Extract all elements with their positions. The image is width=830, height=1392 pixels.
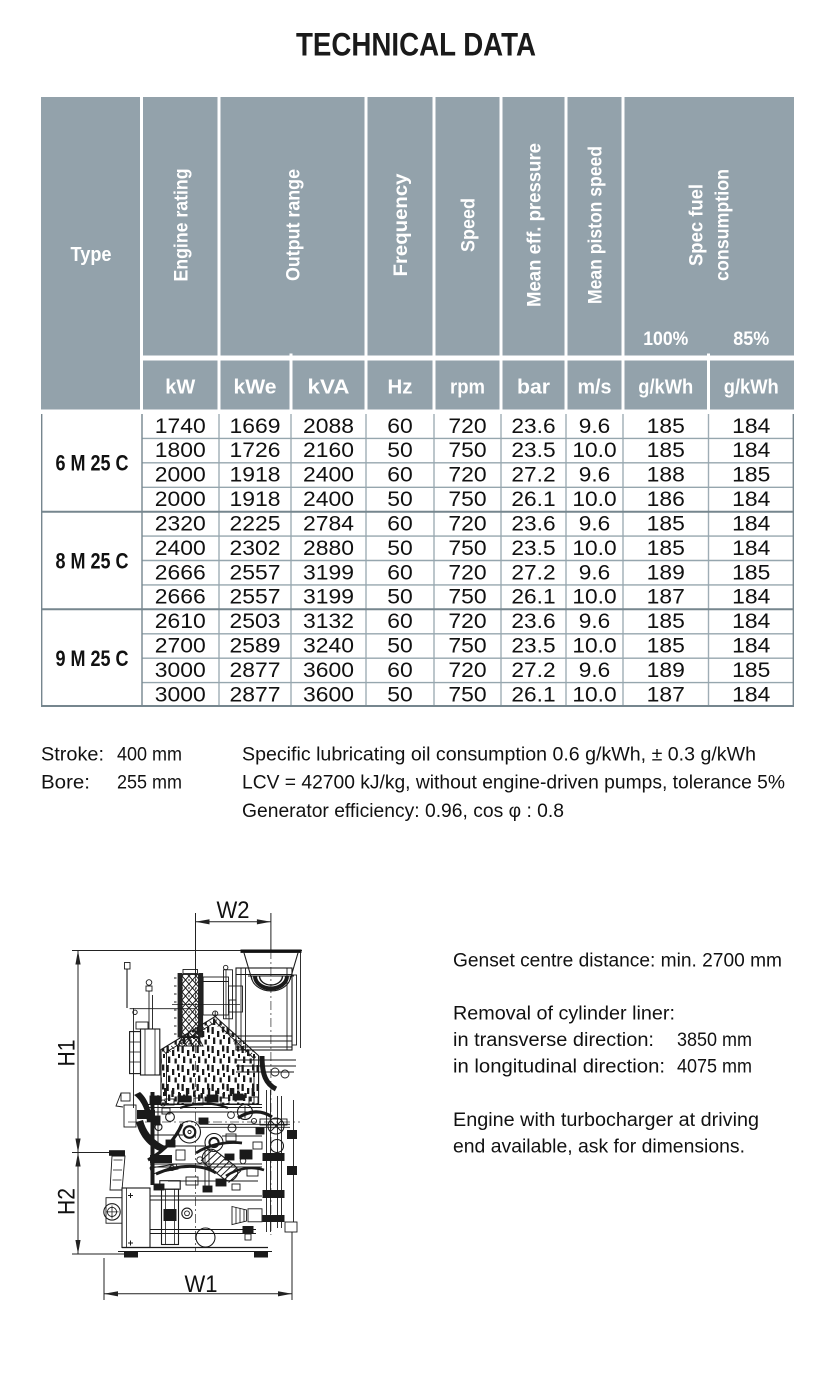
svg-text:3132: 3132 <box>303 609 354 633</box>
svg-text:9.6: 9.6 <box>579 463 611 487</box>
svg-text:26.1: 26.1 <box>511 585 555 609</box>
svg-text:255 mm: 255 mm <box>117 773 182 794</box>
svg-text:2400: 2400 <box>155 536 206 560</box>
svg-text:2160: 2160 <box>303 438 354 462</box>
svg-text:720: 720 <box>448 609 486 633</box>
svg-text:50: 50 <box>387 536 413 560</box>
svg-text:23.5: 23.5 <box>511 438 555 462</box>
svg-text:400 mm: 400 mm <box>117 745 182 766</box>
svg-text:3850 mm: 3850 mm <box>677 1030 752 1051</box>
svg-text:720: 720 <box>448 414 486 438</box>
svg-text:50: 50 <box>387 634 413 658</box>
svg-text:3000: 3000 <box>155 658 206 682</box>
svg-text:23.6: 23.6 <box>511 414 555 438</box>
svg-text:1918: 1918 <box>230 487 281 511</box>
svg-text:consumption: consumption <box>712 169 734 281</box>
svg-text:27.2: 27.2 <box>511 463 555 487</box>
svg-text:1669: 1669 <box>230 414 281 438</box>
svg-text:185: 185 <box>647 438 685 462</box>
svg-text:185: 185 <box>647 609 685 633</box>
svg-text:g/kWh: g/kWh <box>724 377 779 399</box>
svg-text:2877: 2877 <box>230 682 281 706</box>
svg-text:85%: 85% <box>733 329 769 350</box>
svg-text:Mean piston speed: Mean piston speed <box>585 146 607 304</box>
svg-text:184: 184 <box>732 414 770 438</box>
svg-text:Mean eff. pressure: Mean eff. pressure <box>524 143 546 307</box>
svg-text:184: 184 <box>732 487 770 511</box>
svg-text:185: 185 <box>647 414 685 438</box>
svg-text:2880: 2880 <box>303 536 354 560</box>
svg-text:23.6: 23.6 <box>511 609 555 633</box>
svg-text:184: 184 <box>732 438 770 462</box>
svg-text:LCV = 42700 kJ/kg, without eng: LCV = 42700 kJ/kg, without engine-driven… <box>242 773 785 794</box>
svg-text:185: 185 <box>647 536 685 560</box>
svg-text:2589: 2589 <box>230 634 281 658</box>
svg-text:Specific lubricating oil consu: Specific lubricating oil consumption 0.6… <box>242 745 756 766</box>
svg-text:Bore:: Bore: <box>41 773 90 794</box>
svg-text:23.5: 23.5 <box>511 634 555 658</box>
svg-text:2610: 2610 <box>155 609 206 633</box>
svg-text:750: 750 <box>448 634 486 658</box>
svg-text:10.0: 10.0 <box>572 438 616 462</box>
svg-text:2877: 2877 <box>230 658 281 682</box>
svg-text:1918: 1918 <box>230 463 281 487</box>
svg-text:1726: 1726 <box>230 438 281 462</box>
svg-text:60: 60 <box>387 414 413 438</box>
svg-text:2666: 2666 <box>155 560 206 584</box>
svg-text:750: 750 <box>448 487 486 511</box>
svg-text:185: 185 <box>732 463 770 487</box>
svg-text:720: 720 <box>448 560 486 584</box>
svg-text:2400: 2400 <box>303 463 354 487</box>
svg-text:184: 184 <box>732 609 770 633</box>
svg-text:27.2: 27.2 <box>511 658 555 682</box>
svg-text:9.6: 9.6 <box>579 560 611 584</box>
svg-text:189: 189 <box>647 560 685 584</box>
svg-text:rpm: rpm <box>450 377 485 399</box>
svg-text:Genset centre distance: min. 2: Genset centre distance: min. 2700 mm <box>453 951 782 972</box>
svg-text:720: 720 <box>448 658 486 682</box>
svg-text:720: 720 <box>448 463 486 487</box>
svg-text:2320: 2320 <box>155 512 206 536</box>
svg-text:Removal of cylinder liner:: Removal of cylinder liner: <box>453 1004 675 1025</box>
svg-text:184: 184 <box>732 536 770 560</box>
svg-text:end available, ask for dimensi: end available, ask for dimensions. <box>453 1137 745 1158</box>
svg-text:W2: W2 <box>217 897 250 924</box>
svg-text:26.1: 26.1 <box>511 487 555 511</box>
svg-text:750: 750 <box>448 438 486 462</box>
svg-text:184: 184 <box>732 585 770 609</box>
svg-text:1800: 1800 <box>155 438 206 462</box>
svg-text:10.0: 10.0 <box>572 487 616 511</box>
svg-text:Frequency: Frequency <box>390 173 412 276</box>
svg-text:10.0: 10.0 <box>572 682 616 706</box>
svg-text:750: 750 <box>448 536 486 560</box>
svg-text:50: 50 <box>387 487 413 511</box>
svg-text:185: 185 <box>647 634 685 658</box>
svg-text:23.6: 23.6 <box>511 512 555 536</box>
svg-text:60: 60 <box>387 560 413 584</box>
svg-text:189: 189 <box>647 658 685 682</box>
svg-text:9.6: 9.6 <box>579 658 611 682</box>
svg-text:in longitudinal direction:: in longitudinal direction: <box>453 1057 665 1078</box>
svg-text:2225: 2225 <box>230 512 281 536</box>
svg-text:50: 50 <box>387 438 413 462</box>
svg-text:26.1: 26.1 <box>511 682 555 706</box>
svg-text:188: 188 <box>647 463 685 487</box>
svg-text:750: 750 <box>448 585 486 609</box>
svg-text:in transverse direction:: in transverse direction: <box>453 1030 654 1051</box>
svg-text:4075 mm: 4075 mm <box>677 1057 752 1078</box>
svg-text:6 M 25 C: 6 M 25 C <box>56 451 129 476</box>
svg-text:184: 184 <box>732 512 770 536</box>
svg-text:1740: 1740 <box>155 414 206 438</box>
svg-text:186: 186 <box>647 487 685 511</box>
svg-text:100%: 100% <box>643 329 688 350</box>
svg-text:2784: 2784 <box>303 512 354 536</box>
svg-text:184: 184 <box>732 634 770 658</box>
svg-text:3600: 3600 <box>303 682 354 706</box>
svg-text:H1: H1 <box>54 1040 81 1067</box>
svg-text:50: 50 <box>387 682 413 706</box>
svg-text:750: 750 <box>448 682 486 706</box>
svg-text:Type: Type <box>71 244 112 266</box>
svg-text:2503: 2503 <box>230 609 281 633</box>
svg-text:10.0: 10.0 <box>572 536 616 560</box>
svg-text:185: 185 <box>732 658 770 682</box>
svg-text:9.6: 9.6 <box>579 609 611 633</box>
svg-text:2000: 2000 <box>155 463 206 487</box>
svg-text:8 M 25 C: 8 M 25 C <box>56 548 129 573</box>
svg-text:Hz: Hz <box>388 377 413 399</box>
svg-text:10.0: 10.0 <box>572 585 616 609</box>
svg-text:Output range: Output range <box>283 169 305 281</box>
svg-text:3240: 3240 <box>303 634 354 658</box>
svg-text:2557: 2557 <box>230 585 281 609</box>
svg-text:27.2: 27.2 <box>511 560 555 584</box>
svg-text:2557: 2557 <box>230 560 281 584</box>
svg-text:Speed: Speed <box>458 198 480 252</box>
svg-text:kVA: kVA <box>308 377 350 399</box>
svg-text:60: 60 <box>387 658 413 682</box>
svg-text:Generator efficiency: 0.96, co: Generator efficiency: 0.96, cos φ : 0.8 <box>242 801 564 822</box>
svg-text:2400: 2400 <box>303 487 354 511</box>
svg-text:9 M 25 C: 9 M 25 C <box>56 646 129 671</box>
svg-text:187: 187 <box>647 585 685 609</box>
svg-text:9.6: 9.6 <box>579 414 611 438</box>
svg-text:bar: bar <box>517 377 550 399</box>
svg-text:50: 50 <box>387 585 413 609</box>
svg-text:60: 60 <box>387 512 413 536</box>
svg-text:60: 60 <box>387 609 413 633</box>
svg-text:H2: H2 <box>54 1188 81 1215</box>
svg-text:185: 185 <box>647 512 685 536</box>
svg-text:3600: 3600 <box>303 658 354 682</box>
svg-text:187: 187 <box>647 682 685 706</box>
svg-text:kWe: kWe <box>234 377 277 399</box>
svg-text:2700: 2700 <box>155 634 206 658</box>
svg-text:2000: 2000 <box>155 487 206 511</box>
svg-text:2088: 2088 <box>303 414 354 438</box>
svg-text:3000: 3000 <box>155 682 206 706</box>
svg-text:g/kWh: g/kWh <box>638 377 693 399</box>
svg-text:185: 185 <box>732 560 770 584</box>
svg-text:9.6: 9.6 <box>579 512 611 536</box>
svg-text:Engine rating: Engine rating <box>170 169 192 282</box>
svg-text:23.5: 23.5 <box>511 536 555 560</box>
svg-text:TECHNICAL DATA: TECHNICAL DATA <box>296 26 536 62</box>
svg-text:kW: kW <box>165 377 195 399</box>
svg-text:3199: 3199 <box>303 560 354 584</box>
svg-text:Spec fuel: Spec fuel <box>686 184 708 266</box>
svg-text:10.0: 10.0 <box>572 634 616 658</box>
svg-text:60: 60 <box>387 463 413 487</box>
svg-text:m/s: m/s <box>578 377 612 399</box>
svg-text:720: 720 <box>448 512 486 536</box>
svg-text:2302: 2302 <box>230 536 281 560</box>
svg-text:3199: 3199 <box>303 585 354 609</box>
svg-text:Stroke:: Stroke: <box>41 745 104 766</box>
svg-text:Engine with turbocharger at dr: Engine with turbocharger at driving <box>453 1110 759 1131</box>
svg-text:184: 184 <box>732 682 770 706</box>
svg-text:2666: 2666 <box>155 585 206 609</box>
